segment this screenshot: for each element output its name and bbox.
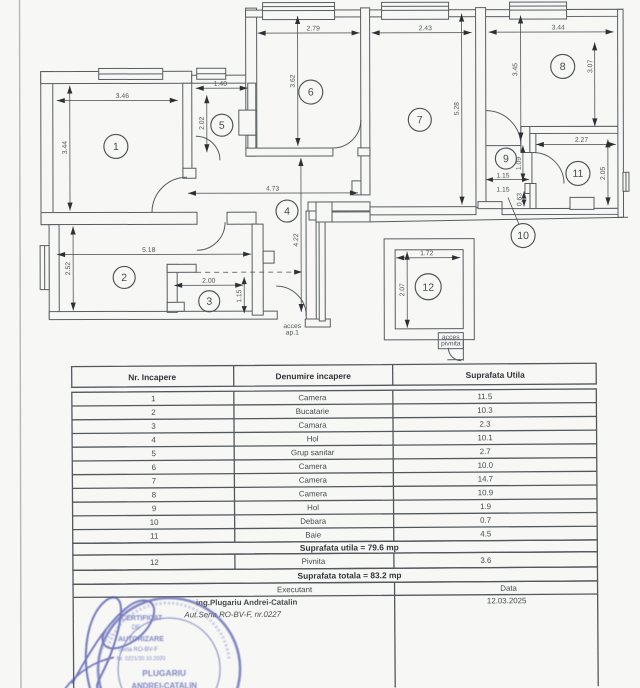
svg-text:12.03.2025: 12.03.2025 xyxy=(487,596,527,605)
svg-text:14.7: 14.7 xyxy=(478,474,493,483)
svg-text:2.43: 2.43 xyxy=(419,25,432,32)
svg-text:CERTIFICAT: CERTIFICAT xyxy=(121,615,163,622)
svg-text:1.15: 1.15 xyxy=(236,289,243,302)
svg-text:Nr. Incapere: Nr. Incapere xyxy=(128,372,176,382)
svg-text:Hol: Hol xyxy=(307,503,319,512)
svg-text:Suprafata totala = 83.2 mp: Suprafata totala = 83.2 mp xyxy=(297,570,401,581)
svg-text:11: 11 xyxy=(572,168,583,180)
svg-text:10.9: 10.9 xyxy=(478,488,494,497)
svg-text:1: 1 xyxy=(151,394,155,403)
svg-text:2.79: 2.79 xyxy=(307,25,320,32)
svg-text:3.07: 3.07 xyxy=(587,60,594,73)
svg-text:1.15: 1.15 xyxy=(496,173,509,180)
svg-text:Camera: Camera xyxy=(298,393,327,402)
svg-text:pivnita: pivnita xyxy=(441,340,461,347)
svg-text:7: 7 xyxy=(152,477,156,486)
svg-text:0.63: 0.63 xyxy=(516,193,523,206)
svg-text:3.45: 3.45 xyxy=(512,63,519,76)
svg-text:Aut.Seria RO-BV-F, nr.0227: Aut.Seria RO-BV-F, nr.0227 xyxy=(183,610,281,620)
svg-text:10: 10 xyxy=(150,518,159,527)
svg-text:2.07: 2.07 xyxy=(399,283,406,296)
svg-text:4: 4 xyxy=(284,206,290,218)
svg-text:3.6: 3.6 xyxy=(480,556,492,565)
svg-text:2.7: 2.7 xyxy=(480,447,491,456)
svg-text:2.02: 2.02 xyxy=(199,116,206,129)
svg-text:Camera: Camera xyxy=(299,489,328,498)
svg-text:Seria RO-BV-F: Seria RO-BV-F xyxy=(118,647,158,653)
svg-text:4.73: 4.73 xyxy=(266,186,279,193)
svg-text:8: 8 xyxy=(152,490,157,499)
svg-text:6: 6 xyxy=(152,463,157,472)
svg-text:3: 3 xyxy=(151,422,156,431)
svg-text:ap.1: ap.1 xyxy=(286,330,299,337)
svg-text:Camara: Camara xyxy=(298,421,327,430)
svg-text:2.27: 2.27 xyxy=(575,137,588,144)
svg-text:8: 8 xyxy=(560,61,566,73)
svg-text:3.62: 3.62 xyxy=(290,74,297,87)
svg-text:3.44: 3.44 xyxy=(62,141,69,154)
svg-text:Pivnita: Pivnita xyxy=(302,557,326,566)
svg-text:Suprafata Utila: Suprafata Utila xyxy=(466,370,526,380)
svg-text:12: 12 xyxy=(150,558,159,567)
svg-text:5.28: 5.28 xyxy=(454,102,461,115)
svg-text:4: 4 xyxy=(151,435,156,444)
svg-text:10.0: 10.0 xyxy=(478,461,494,470)
svg-text:2.05: 2.05 xyxy=(600,167,607,180)
svg-text:Debara: Debara xyxy=(300,517,327,526)
svg-text:0.7: 0.7 xyxy=(480,516,491,525)
svg-text:3: 3 xyxy=(206,296,212,308)
svg-text:PLUGARIU: PLUGARIU xyxy=(142,668,186,678)
svg-text:9: 9 xyxy=(503,153,509,165)
svg-text:Camera: Camera xyxy=(299,476,328,485)
svg-text:10: 10 xyxy=(517,230,529,242)
svg-text:10.3: 10.3 xyxy=(477,406,493,415)
svg-text:AUTORIZARE: AUTORIZARE xyxy=(118,636,164,643)
svg-text:1.9: 1.9 xyxy=(480,502,492,511)
svg-text:ANDREI-CATALIN: ANDREI-CATALIN xyxy=(131,681,197,688)
svg-text:Hol: Hol xyxy=(307,434,319,443)
svg-text:Nr. 0221/20.10.2020: Nr. 0221/20.10.2020 xyxy=(117,656,166,662)
svg-text:1.15: 1.15 xyxy=(496,187,509,194)
svg-text:Bucatarie: Bucatarie xyxy=(296,407,330,416)
svg-text:2: 2 xyxy=(121,272,127,284)
svg-text:Grup sanitar: Grup sanitar xyxy=(291,448,335,457)
svg-text:11: 11 xyxy=(150,532,158,541)
svg-text:Camera: Camera xyxy=(299,462,328,471)
svg-text:9: 9 xyxy=(152,504,157,513)
svg-text:Data: Data xyxy=(500,584,517,593)
svg-text:3.44: 3.44 xyxy=(552,24,565,31)
svg-text:1: 1 xyxy=(113,141,119,153)
svg-text:6: 6 xyxy=(308,87,314,99)
svg-text:5: 5 xyxy=(219,120,225,132)
svg-text:5: 5 xyxy=(151,449,156,458)
svg-text:4.5: 4.5 xyxy=(480,529,492,538)
svg-text:Suprafata utila = 79.6 mp: Suprafata utila = 79.6 mp xyxy=(300,542,399,553)
svg-text:2.52: 2.52 xyxy=(65,262,72,275)
svg-text:2.3: 2.3 xyxy=(479,420,491,429)
svg-text:4.22: 4.22 xyxy=(293,233,300,246)
svg-text:5.18: 5.18 xyxy=(142,247,155,254)
svg-text:1.40: 1.40 xyxy=(214,81,227,88)
svg-text:10.1: 10.1 xyxy=(477,433,492,442)
svg-text:Baie: Baie xyxy=(305,530,321,539)
svg-text:2.00: 2.00 xyxy=(202,278,215,285)
svg-text:1.72: 1.72 xyxy=(420,250,433,257)
svg-text:DE: DE xyxy=(132,625,140,631)
svg-text:Denumire incapere: Denumire incapere xyxy=(275,371,351,381)
svg-text:2: 2 xyxy=(151,408,155,417)
svg-text:ing.Plugariu Andrei-Catalin: ing.Plugariu Andrei-Catalin xyxy=(196,598,298,608)
svg-text:7: 7 xyxy=(417,114,423,126)
svg-text:12: 12 xyxy=(422,282,434,294)
svg-text:3.46: 3.46 xyxy=(116,93,129,100)
svg-text:Executant: Executant xyxy=(277,585,313,594)
svg-text:11.5: 11.5 xyxy=(477,392,492,401)
